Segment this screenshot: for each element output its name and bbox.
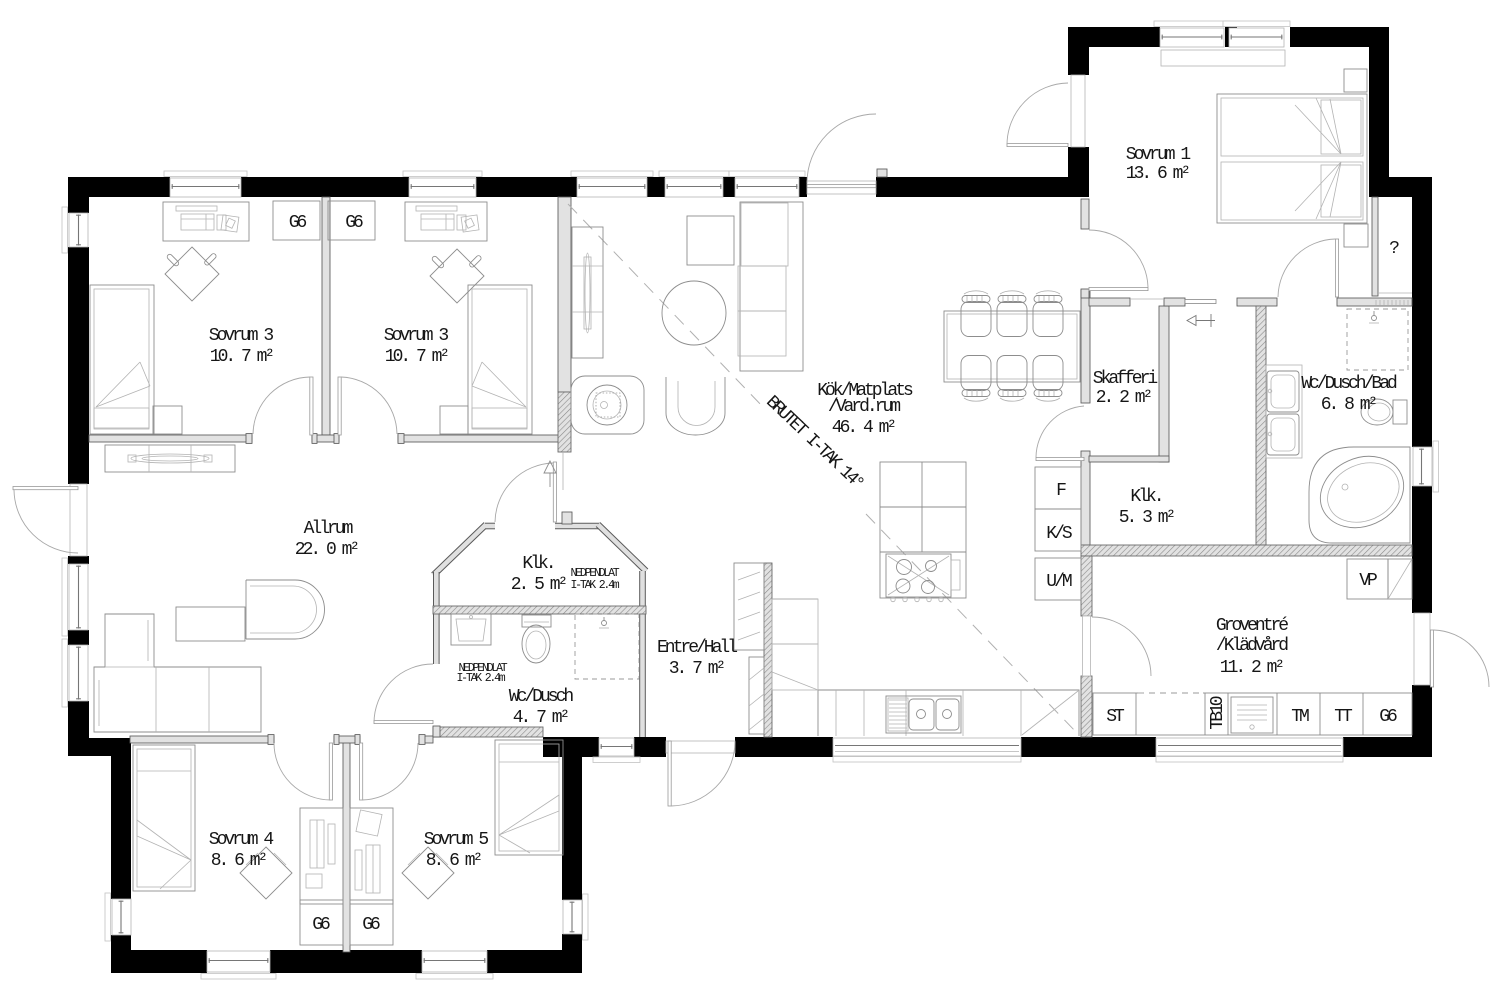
svg-text:U/M: U/M: [1046, 572, 1072, 592]
svg-text:TB10: TB10: [1208, 696, 1228, 729]
svg-text:10. 7 m²: 10. 7 m²: [385, 347, 449, 367]
svg-text:5. 3 m²: 5. 3 m²: [1119, 508, 1175, 528]
svg-text:10. 7 m²: 10. 7 m²: [210, 347, 274, 367]
svg-text:13. 6 m²: 13. 6 m²: [1126, 164, 1190, 184]
svg-text:Klk.: Klk.: [522, 554, 553, 574]
svg-text:G6: G6: [312, 915, 330, 935]
svg-text:I-TAK 2.4m: I-TAK 2.4m: [456, 672, 505, 685]
svg-text:3. 7 m²: 3. 7 m²: [669, 659, 725, 679]
svg-text:TM: TM: [1291, 707, 1309, 727]
svg-text:Groventré: Groventré: [1216, 616, 1288, 636]
svg-text:Sovrum 3: Sovrum 3: [209, 326, 274, 346]
svg-text:Sovrum 4: Sovrum 4: [209, 830, 274, 850]
svg-text:11. 2 m²: 11. 2 m²: [1220, 658, 1284, 678]
svg-text:VP: VP: [1359, 571, 1377, 591]
svg-text:Skafferi: Skafferi: [1093, 369, 1158, 389]
svg-text:Sovrum 3: Sovrum 3: [384, 326, 449, 346]
svg-text:Sovrum 1: Sovrum 1: [1126, 145, 1191, 165]
svg-text:6. 8 m²: 6. 8 m²: [1321, 395, 1377, 415]
svg-text:/Klädvård: /Klädvård: [1216, 636, 1288, 656]
svg-text:Wc/Dusch/Bad: Wc/Dusch/Bad: [1301, 374, 1397, 394]
svg-text:4. 7 m²: 4. 7 m²: [513, 708, 569, 728]
svg-text:Sovrum 5: Sovrum 5: [424, 830, 489, 850]
svg-text:/Vard.rum: /Vard.rum: [828, 397, 900, 417]
svg-text:2. 2 m²: 2. 2 m²: [1096, 388, 1152, 408]
svg-text:Wc/Dusch: Wc/Dusch: [509, 687, 574, 707]
svg-text:G6: G6: [362, 915, 380, 935]
svg-text:22. 0 m²: 22. 0 m²: [295, 540, 359, 560]
svg-text:2. 5 m²: 2. 5 m²: [511, 575, 567, 595]
svg-text:G6: G6: [345, 213, 363, 233]
svg-text:46. 4 m²: 46. 4 m²: [832, 418, 896, 438]
svg-text:Klk.: Klk.: [1130, 487, 1161, 507]
svg-text:8. 6 m²: 8. 6 m²: [426, 851, 482, 871]
svg-text:Entre/Hall: Entre/Hall: [657, 638, 737, 658]
svg-text:G6: G6: [1379, 707, 1397, 727]
svg-text:8. 6 m²: 8. 6 m²: [211, 851, 267, 871]
svg-text:I-TAK 2.4m: I-TAK 2.4m: [570, 579, 619, 592]
svg-text:K/S: K/S: [1046, 524, 1072, 544]
svg-text:G6: G6: [289, 213, 307, 233]
svg-text:Allrum: Allrum: [304, 519, 353, 539]
